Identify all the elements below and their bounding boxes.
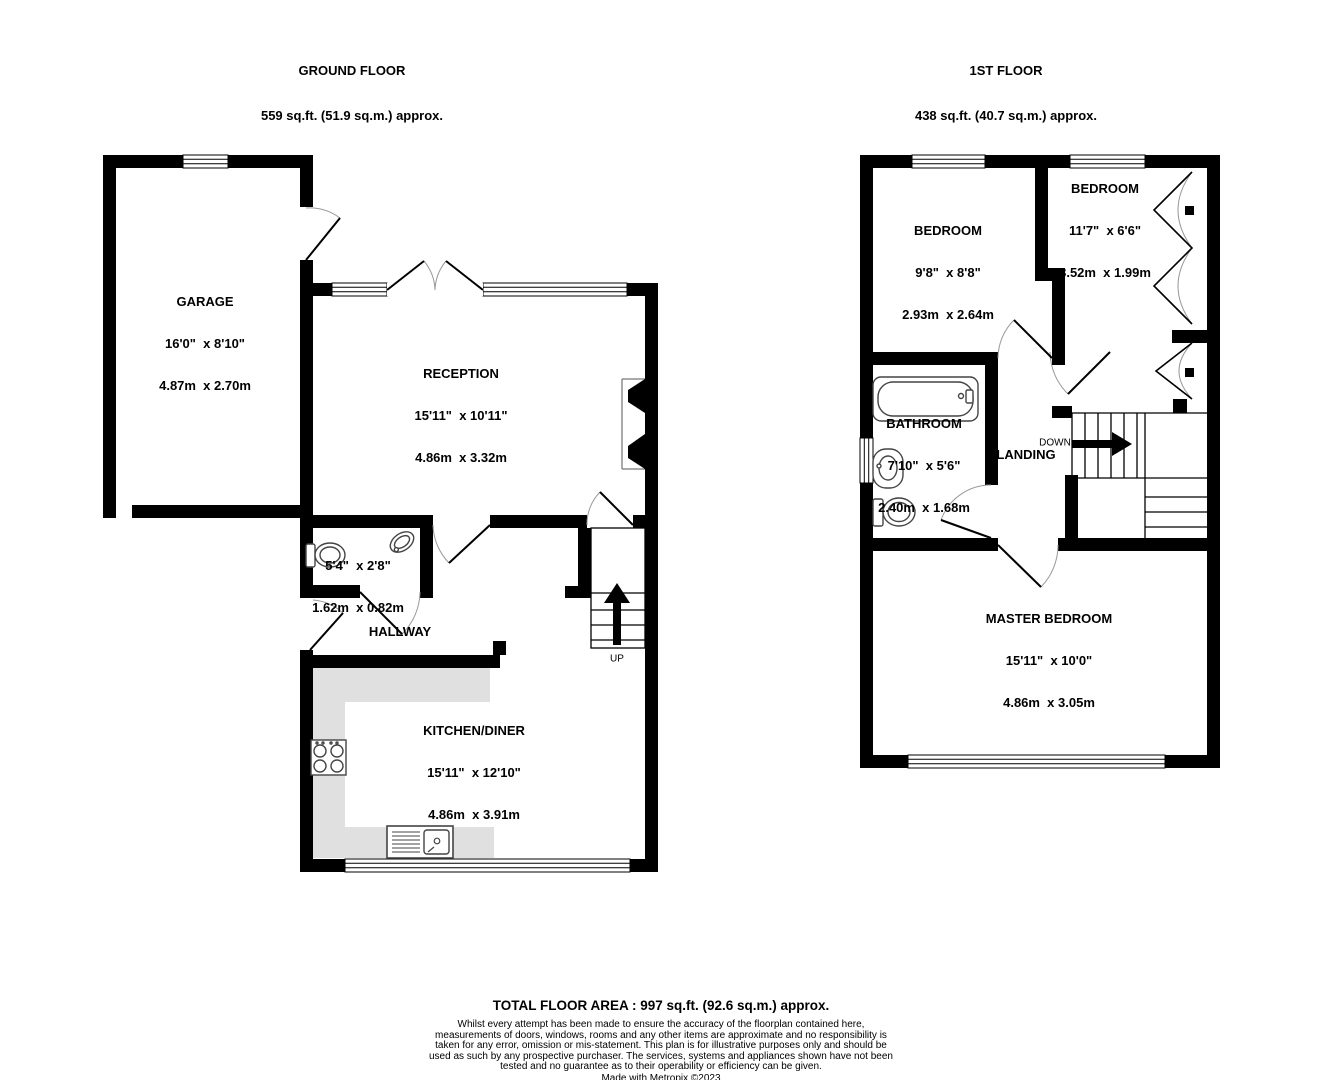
down-arrow-icon	[1072, 432, 1132, 456]
room-label-reception: RECEPTION 15'11" x 10'11" 4.86m x 3.32m	[415, 339, 508, 479]
ground-floor-header: GROUND FLOOR 559 sq.ft. (51.9 sq.m.) app…	[261, 33, 443, 138]
fireplace-icon	[622, 379, 645, 469]
stairs-up-label: UP	[610, 654, 624, 665]
first-floor-area: 438 sq.ft. (40.7 sq.m.) approx.	[915, 108, 1097, 123]
room-label-landing: LANDING	[996, 420, 1055, 476]
ground-floor-title: GROUND FLOOR	[261, 63, 443, 78]
floorplan-page: GROUND FLOOR 559 sq.ft. (51.9 sq.m.) app…	[0, 0, 1322, 1080]
credit-text: Made with Metropix ©2023	[401, 1073, 921, 1080]
room-label-bathroom: BATHROOM 7'10" x 5'6" 2.40m x 1.68m	[878, 389, 970, 529]
room-label-bedroom-left: BEDROOM 9'8" x 8'8" 2.93m x 2.64m	[902, 196, 994, 336]
stove-icon	[311, 740, 346, 775]
room-label-kitchen-diner: KITCHEN/DINER 15'11" x 12'10" 4.86m x 3.…	[423, 696, 525, 836]
up-arrow-icon	[604, 583, 630, 645]
staircase-up-icon	[591, 528, 645, 648]
footer: TOTAL FLOOR AREA : 997 sq.ft. (92.6 sq.m…	[401, 998, 921, 1080]
first-floor-title: 1ST FLOOR	[915, 63, 1097, 78]
room-label-master-bedroom: MASTER BEDROOM 15'11" x 10'0" 4.86m x 3.…	[986, 584, 1112, 724]
room-label-garage: GARAGE 16'0" x 8'10" 4.87m x 2.70m	[159, 267, 251, 407]
ground-floor-area: 559 sq.ft. (51.9 sq.m.) approx.	[261, 108, 443, 123]
total-floor-area: TOTAL FLOOR AREA : 997 sq.ft. (92.6 sq.m…	[401, 998, 921, 1013]
room-label-bedroom-right: BEDROOM 11'7" x 6'6" 3.52m x 1.99m	[1059, 154, 1151, 294]
disclaimer-text: Whilst every attempt has been made to en…	[429, 1020, 893, 1073]
first-floor-header: 1ST FLOOR 438 sq.ft. (40.7 sq.m.) approx…	[915, 33, 1097, 138]
room-label-hallway: HALLWAY	[369, 597, 431, 653]
staircase-down-icon	[1072, 413, 1207, 538]
wardrobe-doors-icon	[1154, 172, 1194, 399]
